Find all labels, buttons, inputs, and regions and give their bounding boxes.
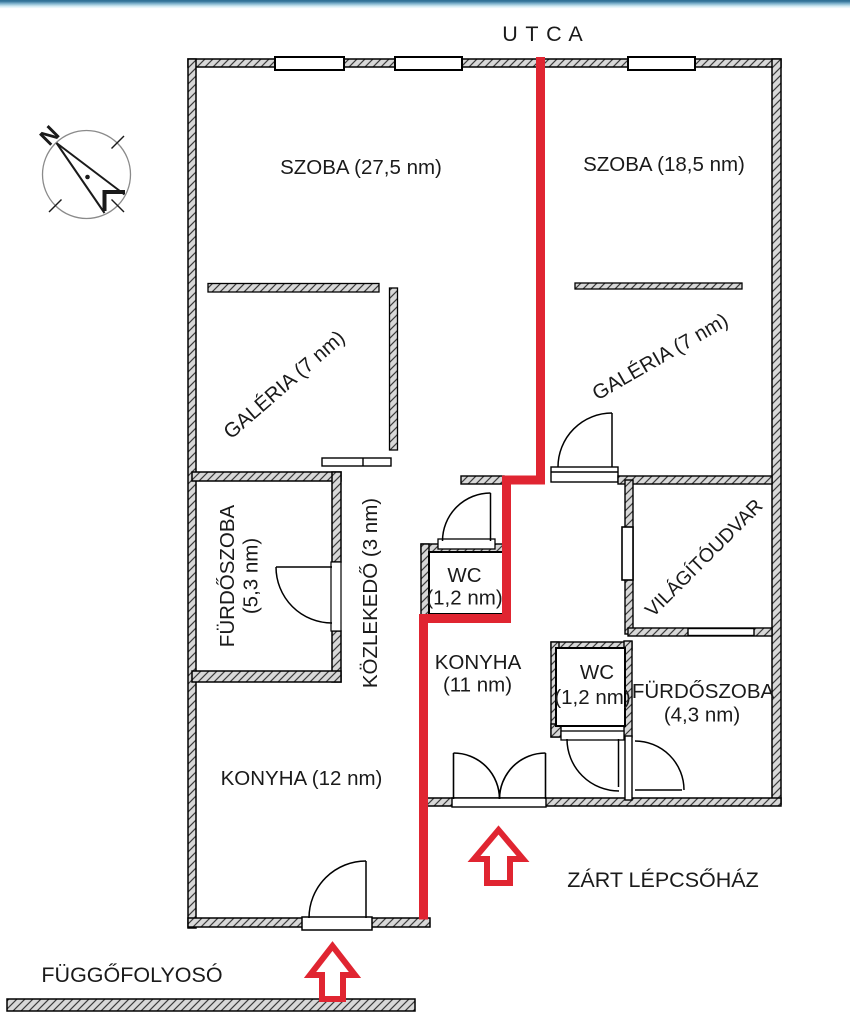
svg-text:(1,2 nm): (1,2 nm) <box>426 587 502 610</box>
svg-text:(11 nm): (11 nm) <box>443 674 512 697</box>
svg-text:SZOBA (18,5 nm): SZOBA (18,5 nm) <box>583 153 745 176</box>
svg-text:FÜGGŐFOLYOSÓ: FÜGGŐFOLYOSÓ <box>41 962 222 987</box>
svg-text:WC: WC <box>447 564 481 587</box>
svg-text:VILÁGÍTÓUDVAR: VILÁGÍTÓUDVAR <box>640 494 767 621</box>
svg-text:KONYHA: KONYHA <box>435 651 522 674</box>
svg-text:WC: WC <box>580 661 614 684</box>
svg-text:(5,3 nm): (5,3 nm) <box>240 538 263 614</box>
svg-text:GALÉRIA (7 nm): GALÉRIA (7 nm) <box>588 309 732 405</box>
svg-text:KONYHA (12 nm): KONYHA (12 nm) <box>221 767 383 790</box>
svg-text:GALÉRIA (7 nm): GALÉRIA (7 nm) <box>219 326 349 444</box>
svg-text:(1,2 nm): (1,2 nm) <box>554 686 630 709</box>
svg-text:SZOBA (27,5 nm): SZOBA (27,5 nm) <box>280 156 442 179</box>
svg-text:FÜRDŐSZOBA: FÜRDŐSZOBA <box>216 504 239 647</box>
svg-text:U T C A: U T C A <box>502 22 583 46</box>
svg-text:ZÁRT LÉPCSŐHÁZ: ZÁRT LÉPCSŐHÁZ <box>567 867 759 892</box>
svg-text:FÜRDŐSZOBA: FÜRDŐSZOBA <box>632 680 775 703</box>
svg-text:KÖZLEKEDŐ (3 nm): KÖZLEKEDŐ (3 nm) <box>359 498 382 688</box>
svg-text:(4,3 nm): (4,3 nm) <box>664 704 740 727</box>
